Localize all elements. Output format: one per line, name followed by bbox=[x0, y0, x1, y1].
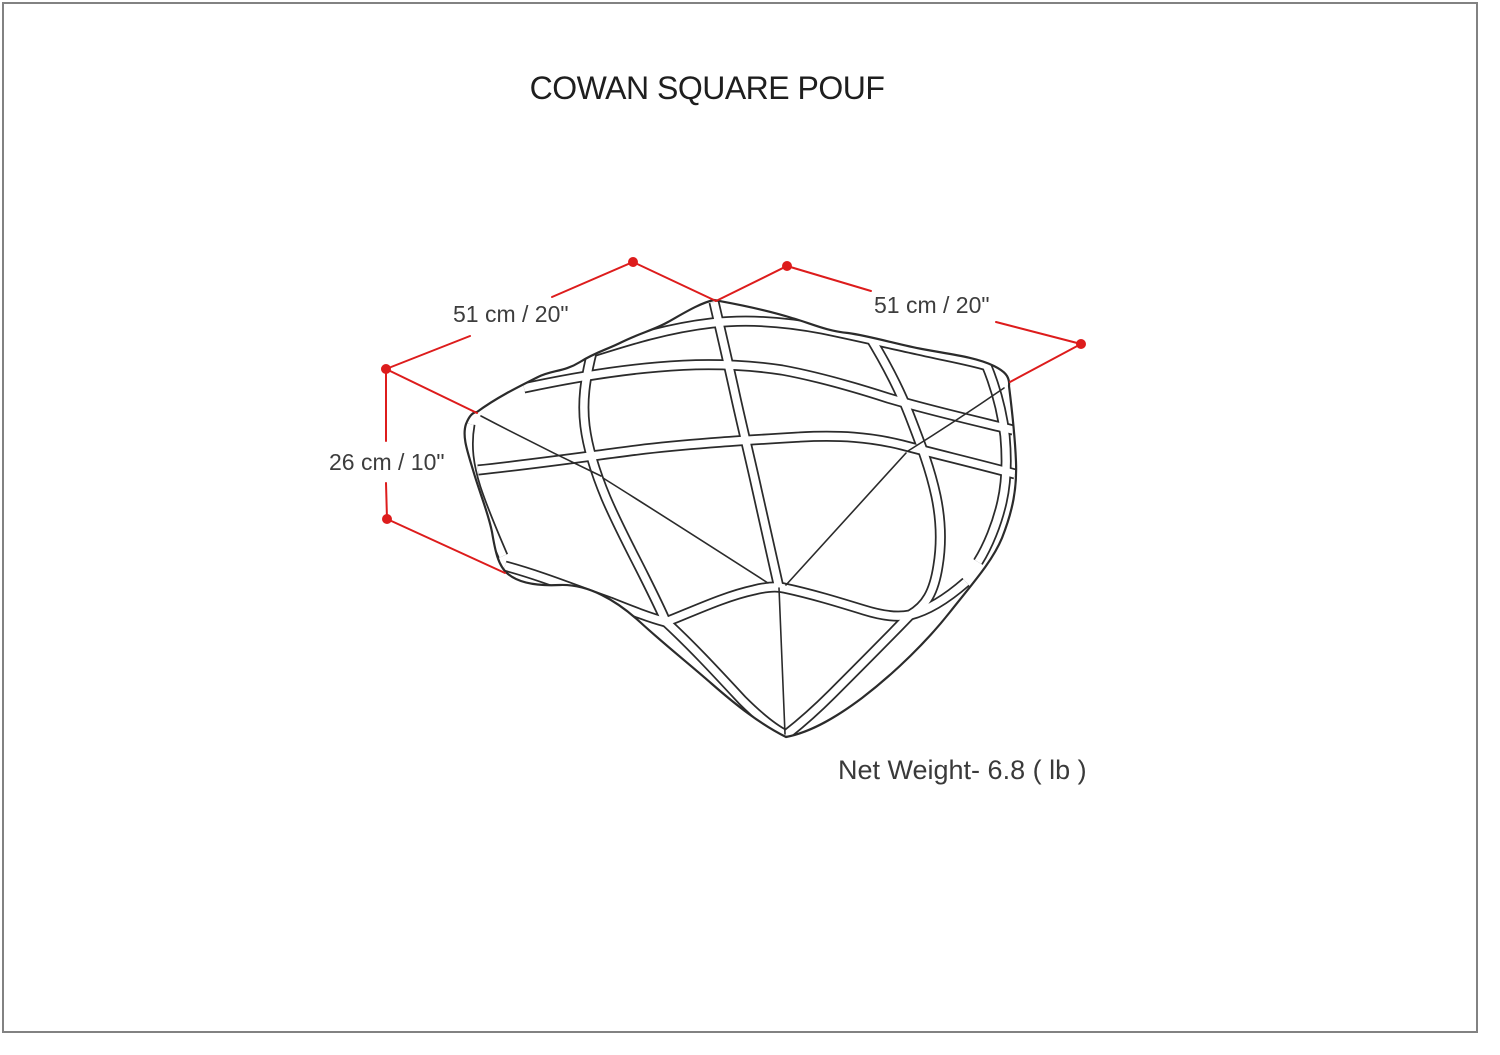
dim-line-top-right-a bbox=[716, 266, 871, 301]
dim-dot bbox=[782, 261, 792, 271]
dim-dot bbox=[382, 514, 392, 524]
dim-line-top-right-b bbox=[996, 322, 1081, 382]
dim-dot bbox=[381, 364, 391, 374]
dim-line-top-left bbox=[552, 262, 716, 301]
dim-dot bbox=[1076, 339, 1086, 349]
pouf-line-drawing bbox=[465, 300, 1017, 737]
dimension-label-height: 26 cm / 10" bbox=[329, 449, 445, 476]
product-spec-sheet: COWAN SQUARE POUF bbox=[0, 0, 1500, 1055]
dimension-label-width-right: 51 cm / 20" bbox=[874, 292, 990, 319]
dim-dot bbox=[628, 257, 638, 267]
net-weight-label: Net Weight- 6.8 ( lb ) bbox=[838, 755, 1087, 786]
pouf-dimension-diagram bbox=[0, 0, 1500, 1055]
dimension-label-width-left: 51 cm / 20" bbox=[453, 301, 569, 328]
dim-line-height-to-corner bbox=[386, 369, 477, 413]
